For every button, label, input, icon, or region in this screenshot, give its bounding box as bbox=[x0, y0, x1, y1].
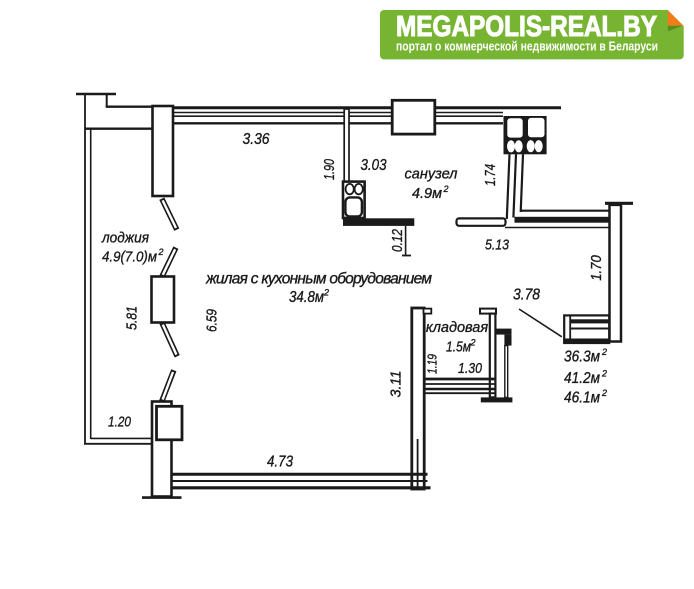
svg-text:4.9м: 4.9м bbox=[412, 185, 442, 202]
svg-text:5.13: 5.13 bbox=[485, 237, 510, 254]
svg-text:3.78: 3.78 bbox=[513, 287, 540, 304]
svg-text:4.9(7.0)м: 4.9(7.0)м bbox=[102, 250, 157, 266]
svg-text:1.70: 1.70 bbox=[588, 255, 605, 281]
svg-text:0.12: 0.12 bbox=[390, 229, 406, 252]
svg-text:4.73: 4.73 bbox=[267, 454, 293, 471]
svg-text:жилая с кухонным оборудованием: жилая с кухонным оборудованием bbox=[205, 271, 432, 288]
svg-text:6.59: 6.59 bbox=[204, 308, 221, 332]
svg-text:3.11: 3.11 bbox=[388, 371, 405, 398]
svg-text:3.36: 3.36 bbox=[243, 131, 270, 148]
svg-text:1.5м: 1.5м bbox=[446, 340, 471, 356]
svg-text:лоджия: лоджия bbox=[101, 231, 149, 247]
svg-text:1.20: 1.20 bbox=[108, 414, 132, 431]
svg-text:36.3м: 36.3м bbox=[564, 349, 600, 366]
svg-text:3.03: 3.03 bbox=[361, 157, 387, 174]
svg-text:5.81: 5.81 bbox=[124, 306, 141, 330]
svg-text:2: 2 bbox=[469, 338, 475, 348]
svg-text:2: 2 bbox=[601, 388, 607, 398]
svg-text:46.1м: 46.1м bbox=[564, 390, 600, 407]
svg-text:2: 2 bbox=[601, 369, 607, 379]
svg-text:1.19: 1.19 bbox=[426, 354, 440, 374]
svg-text:34.8м: 34.8м bbox=[289, 289, 324, 306]
svg-text:41.2м: 41.2м bbox=[564, 370, 600, 387]
svg-text:1.90: 1.90 bbox=[321, 159, 338, 180]
svg-text:2: 2 bbox=[158, 247, 164, 257]
svg-text:2: 2 bbox=[601, 347, 607, 357]
svg-text:портал о коммерческой недвижим: портал о коммерческой недвижимости в Бел… bbox=[396, 39, 658, 54]
svg-text:2: 2 bbox=[323, 288, 329, 298]
svg-text:2: 2 bbox=[443, 184, 449, 194]
svg-text:санузел: санузел bbox=[405, 166, 459, 183]
svg-text:1.74: 1.74 bbox=[482, 164, 499, 186]
svg-text:кладовая: кладовая bbox=[426, 320, 488, 336]
svg-text:1.30: 1.30 bbox=[458, 361, 482, 377]
